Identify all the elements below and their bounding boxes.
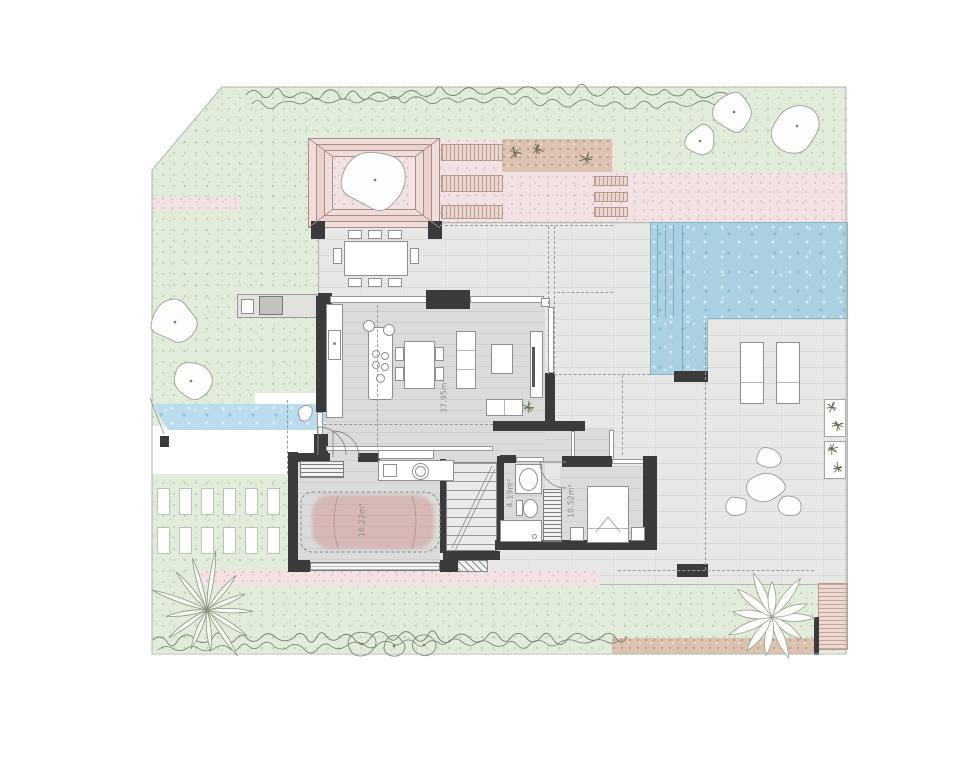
area-label-garage: 16.22m² xyxy=(358,503,367,537)
wall-west-living xyxy=(316,296,326,412)
outdoor-chair xyxy=(348,278,362,287)
area-label-bedroom: 10.52m² xyxy=(567,484,576,518)
roof-overhang-dashed xyxy=(557,292,613,293)
utility-sink xyxy=(383,464,397,477)
stepping-stone xyxy=(0,171,22,180)
toilet-bowl xyxy=(523,499,538,518)
stepping-stone xyxy=(0,117,19,126)
cooktop-burner xyxy=(381,363,389,371)
stepping-stone xyxy=(0,90,15,99)
stepping-stone xyxy=(0,99,17,108)
area-label-living: 37.95m² xyxy=(440,379,449,413)
outdoor-chair xyxy=(388,230,402,239)
roof-overhang-dashed xyxy=(618,570,814,571)
wardrobe xyxy=(543,489,562,542)
roof-overhang-dashed xyxy=(440,225,613,226)
bed xyxy=(587,486,629,543)
stepping-stone xyxy=(0,189,17,198)
stepping-stone xyxy=(0,261,15,270)
coffee-table xyxy=(491,344,513,374)
stepping-stone xyxy=(0,162,23,171)
wall-corner xyxy=(440,560,458,572)
sun-lounger-fold xyxy=(777,382,799,383)
outdoor-chair xyxy=(410,248,419,264)
wall-bath-north xyxy=(500,455,516,463)
bench-divider xyxy=(504,400,505,415)
wall-south-living xyxy=(493,421,585,431)
driveway-paver xyxy=(245,527,258,554)
driveway-paver xyxy=(245,488,258,515)
sun-lounger-fold xyxy=(741,382,763,383)
shower-drain xyxy=(532,534,537,539)
driveway-paver xyxy=(157,527,170,554)
stepping-stone xyxy=(0,144,23,153)
dining-table xyxy=(404,341,435,389)
roof-overhang-dashed xyxy=(554,374,650,375)
stepping-stone xyxy=(0,307,7,314)
stepping-stone xyxy=(0,207,24,216)
stepping-stone xyxy=(0,279,7,286)
sofa xyxy=(456,331,476,389)
stepping-stone xyxy=(0,9,19,18)
cooktop-burner xyxy=(372,361,380,369)
planter-box xyxy=(824,399,846,437)
dining-chair xyxy=(435,347,444,361)
garage-door xyxy=(310,562,440,571)
kitchen-sink xyxy=(328,330,341,360)
stepping-stone xyxy=(0,135,20,144)
sofa-cushion-line xyxy=(457,350,475,351)
wall-corner xyxy=(288,560,310,572)
stepping-stone xyxy=(0,27,17,36)
tv-screen xyxy=(532,347,535,387)
stepping-stone xyxy=(0,252,16,261)
car-highlight xyxy=(312,495,434,549)
area-label-bathroom: 4.19m² xyxy=(506,479,515,508)
outdoor-dining-table xyxy=(344,241,408,276)
garage-storage xyxy=(300,461,344,478)
dining-chair xyxy=(395,367,404,381)
driveway-paver xyxy=(179,488,192,515)
stepping-stone xyxy=(0,300,7,307)
wall-bedroom-east xyxy=(643,456,657,548)
floor-plan-canvas: 37.95m² 16.22m² 4.19m² 10.52m² xyxy=(0,0,972,762)
guide-dashed xyxy=(324,424,493,425)
driveway-paver xyxy=(267,488,280,515)
sun-lounger xyxy=(740,342,764,404)
stepping-stone xyxy=(0,72,22,81)
window-bedroom xyxy=(612,459,646,464)
driveway-paver xyxy=(157,488,170,515)
stepping-stone xyxy=(0,18,17,27)
stepping-stone xyxy=(0,286,7,293)
driveway-paver xyxy=(179,527,192,554)
window-sidelight xyxy=(317,412,323,436)
window-north-b xyxy=(470,296,544,303)
stepping-stone xyxy=(0,216,15,225)
stepping-stone xyxy=(0,36,19,45)
bar-stool xyxy=(383,324,395,336)
driveway-paver xyxy=(223,488,236,515)
driveway-paver xyxy=(201,488,214,515)
window-north-a xyxy=(330,296,427,303)
stepping-stone xyxy=(0,180,22,189)
window-hall xyxy=(571,431,575,459)
stepping-stone xyxy=(0,153,23,162)
stepping-stone xyxy=(0,0,22,9)
stepping-stone xyxy=(0,198,20,207)
sink-tap xyxy=(333,342,336,345)
washing-machine-drum xyxy=(415,466,426,477)
bar-stool xyxy=(363,320,375,332)
kitchen-counter xyxy=(326,304,343,418)
stepping-stone xyxy=(0,54,20,63)
wall-garage-north xyxy=(358,453,380,462)
stepping-stone xyxy=(0,293,7,300)
stepping-stone xyxy=(0,45,23,54)
stepping-stone xyxy=(0,234,23,243)
outdoor-chair xyxy=(368,278,382,287)
wardrobe-header xyxy=(562,456,612,467)
toilet-tank xyxy=(516,500,523,516)
dining-chair xyxy=(395,347,404,361)
nightstand xyxy=(570,527,584,541)
outdoor-chair xyxy=(333,248,342,264)
stepping-stone xyxy=(0,270,20,279)
stepping-stone xyxy=(0,108,23,117)
outdoor-chair xyxy=(388,278,402,287)
driveway-paver xyxy=(201,527,214,554)
wall-north-block xyxy=(426,290,470,309)
wall-south-stairs xyxy=(443,551,500,560)
window-bath xyxy=(516,457,544,462)
bed-pillow-line xyxy=(588,528,628,529)
bath-sink xyxy=(519,468,538,491)
stepping-stone xyxy=(0,243,21,252)
roof-overhang-dashed xyxy=(548,226,549,374)
planter-box xyxy=(824,441,846,479)
outdoor-chair xyxy=(348,230,362,239)
nightstand xyxy=(631,527,645,541)
driveway-paver xyxy=(267,527,280,554)
roof-overhang-dashed xyxy=(622,375,623,455)
driveway-paver xyxy=(223,527,236,554)
stepping-stone xyxy=(0,63,16,72)
stepping-stone xyxy=(0,81,18,90)
sofa-cushion-line xyxy=(457,369,475,370)
cooktop-burner xyxy=(372,350,380,358)
cooktop-burner xyxy=(381,352,389,360)
hall-shelf xyxy=(378,450,434,459)
roof-overhang-dashed xyxy=(705,322,706,570)
stepping-stone xyxy=(0,225,19,234)
stepping-stone xyxy=(0,126,22,135)
wall-garage-west xyxy=(288,452,298,572)
wall-east-living xyxy=(545,373,555,423)
roof-overhang-dashed xyxy=(554,226,555,374)
sun-lounger xyxy=(776,342,800,404)
outdoor-chair xyxy=(368,230,382,239)
